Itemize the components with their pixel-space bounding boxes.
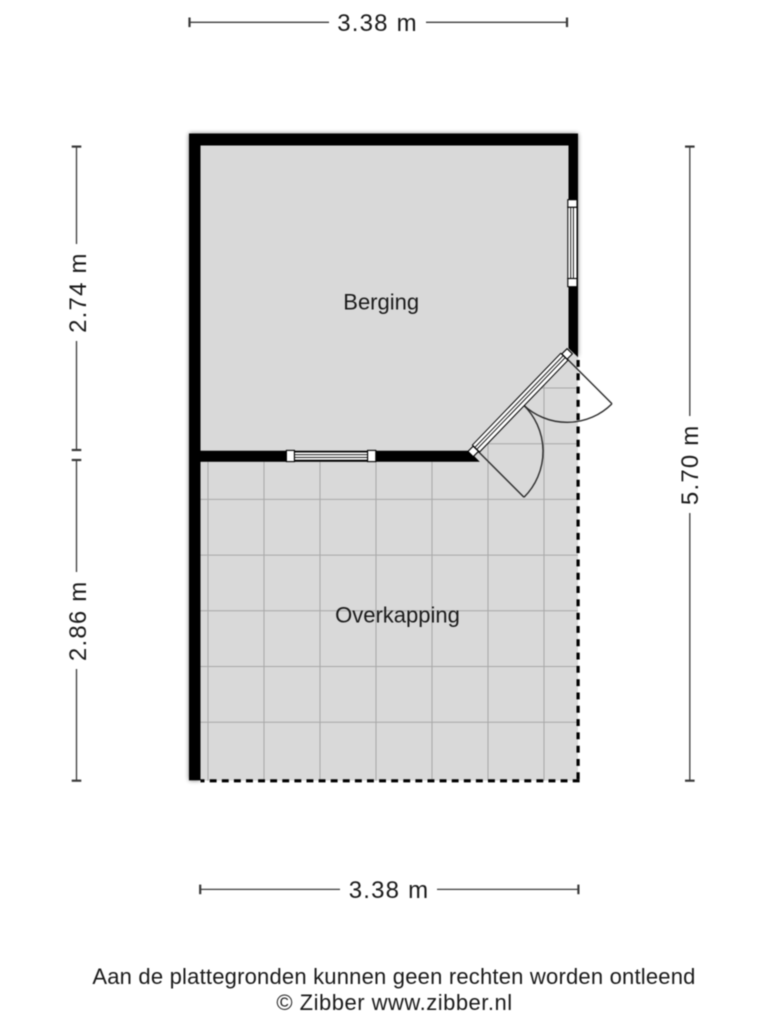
svg-text:5.70 m: 5.70 m: [677, 425, 704, 506]
svg-text:Aan de plattegronden kunnen ge: Aan de plattegronden kunnen geen rechten…: [92, 964, 695, 989]
svg-text:3.38 m: 3.38 m: [337, 10, 418, 37]
svg-text:2.86 m: 2.86 m: [65, 581, 92, 662]
svg-text:3.38 m: 3.38 m: [349, 877, 430, 904]
svg-text:Berging: Berging: [343, 290, 419, 315]
svg-text:2.74 m: 2.74 m: [65, 252, 92, 333]
svg-text:© Zibber www.zibber.nl: © Zibber www.zibber.nl: [276, 990, 512, 1015]
svg-text:Overkapping: Overkapping: [335, 603, 460, 628]
